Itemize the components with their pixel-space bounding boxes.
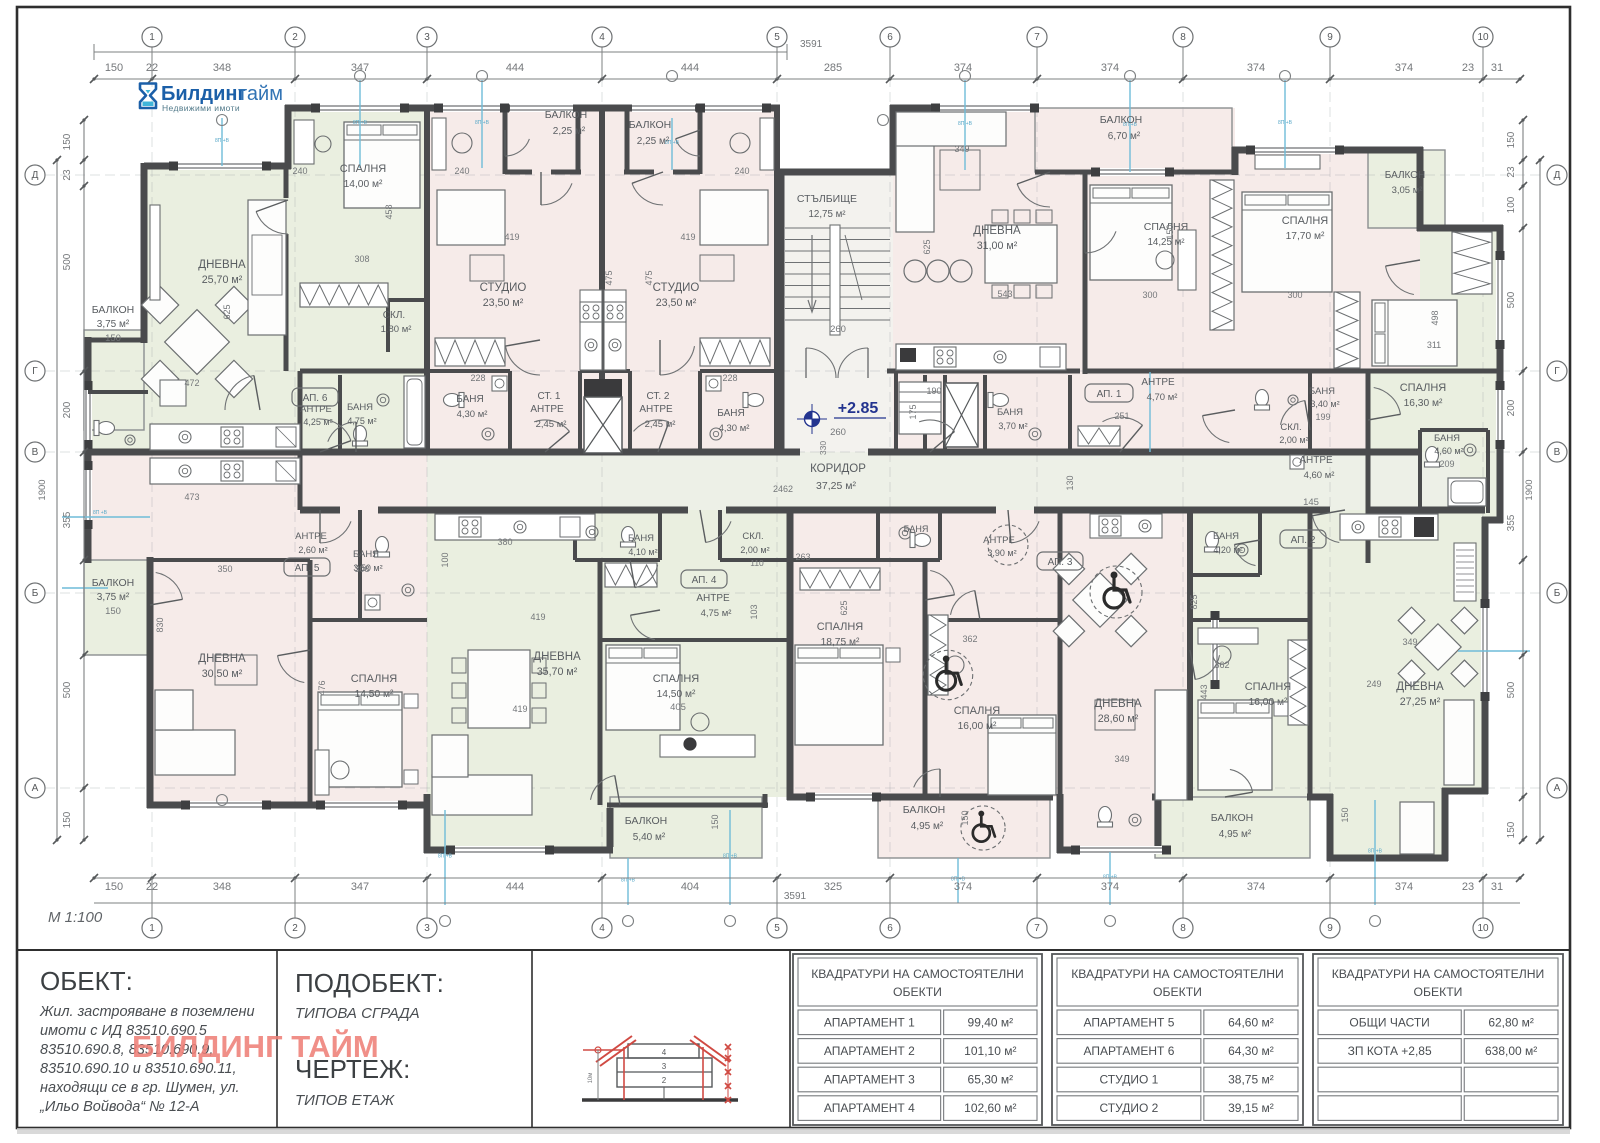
svg-text:500: 500 [62,681,73,698]
svg-text:349: 349 [954,144,969,154]
svg-text:8П +В: 8П +В [353,120,368,126]
svg-text:473: 473 [184,492,199,502]
svg-text:9: 9 [1327,32,1333,43]
svg-text:4,30 м²: 4,30 м² [719,423,750,434]
svg-text:БАЛКОН: БАЛКОН [92,577,135,589]
svg-text:ДНЕВНА: ДНЕВНА [198,259,246,271]
svg-text:830: 830 [155,617,165,632]
svg-text:150: 150 [62,811,73,828]
svg-text:2462: 2462 [773,484,793,494]
svg-text:348: 348 [213,881,231,893]
svg-text:23: 23 [1462,881,1474,893]
svg-text:ОБЩИ ЧАСТИ: ОБЩИ ЧАСТИ [1349,1015,1429,1029]
svg-text:18,75 м²: 18,75 м² [821,637,860,648]
svg-text:419: 419 [504,232,519,242]
svg-text:В: В [32,447,39,458]
svg-text:228: 228 [722,373,737,383]
svg-text:199: 199 [1315,412,1330,422]
svg-text:4,25 м²: 4,25 м² [303,417,332,427]
svg-text:374: 374 [1101,881,1119,893]
svg-text:СПАЛНЯ: СПАЛНЯ [340,163,387,175]
svg-text:АП. 1: АП. 1 [1097,389,1122,400]
svg-text:СТ. 1: СТ. 1 [537,391,560,402]
svg-text:110: 110 [750,558,764,568]
svg-text:А: А [1554,783,1561,794]
svg-text:300: 300 [1142,290,1157,300]
svg-text:БАНЯ: БАНЯ [1213,531,1239,542]
svg-text:145: 145 [1303,497,1319,508]
svg-text:190: 190 [926,386,941,396]
svg-text:БАЛКОН: БАЛКОН [92,304,135,316]
svg-text:200: 200 [62,401,73,418]
svg-text:АПАРТАМЕНТ 6: АПАРТАМЕНТ 6 [1083,1044,1174,1058]
svg-text:260: 260 [830,324,846,335]
svg-text:5: 5 [774,32,780,43]
svg-text:АНТРЕ: АНТРЕ [983,535,1015,546]
svg-text:475: 475 [604,270,614,285]
svg-text:14,00 м²: 14,00 м² [344,179,383,190]
svg-text:150: 150 [710,814,720,829]
svg-text:500: 500 [1506,291,1517,308]
svg-text:150: 150 [105,881,123,893]
svg-text:500: 500 [62,253,73,270]
svg-text:8: 8 [1180,923,1186,934]
svg-text:2,25 м²: 2,25 м² [553,126,586,137]
svg-text:В: В [1554,447,1561,458]
svg-text:ДНЕВНА: ДНЕВНА [533,651,581,663]
svg-text:тайм: тайм [238,83,283,105]
svg-text:6: 6 [887,32,893,43]
svg-text:Жил. застрояване в поземлени: Жил. застрояване в поземлени [39,1004,255,1020]
svg-text:28,60 м²: 28,60 м² [1098,713,1139,725]
svg-text:355: 355 [1506,514,1517,531]
svg-text:СПАЛНЯ: СПАЛНЯ [653,673,700,685]
svg-text:350: 350 [217,564,232,574]
svg-text:374: 374 [1101,62,1119,74]
svg-text:АП. 5: АП. 5 [295,563,320,574]
svg-text:ДНЕВНА: ДНЕВНА [1396,681,1444,693]
svg-text:14,50 м²: 14,50 м² [657,689,696,700]
svg-text:175: 175 [908,404,918,419]
svg-text:СТУДИО: СТУДИО [653,282,700,294]
svg-text:3,40 м²: 3,40 м² [1310,399,1339,409]
svg-text:23: 23 [1462,62,1474,74]
svg-text:СКЛ.: СКЛ. [383,310,405,321]
svg-text:4,60 м²: 4,60 м² [1304,470,1335,481]
svg-text:37,25 м²: 37,25 м² [816,480,856,492]
svg-text:8П +В: 8П +В [1278,120,1293,126]
svg-text:17,70 м²: 17,70 м² [1286,231,1325,242]
svg-text:2: 2 [292,32,298,43]
svg-text:8П +В: 8П +В [723,854,738,860]
svg-text:М 1:100: М 1:100 [48,909,103,926]
svg-text:23,50 м²: 23,50 м² [483,297,524,309]
svg-text:3,75 м²: 3,75 м² [97,592,130,603]
svg-text:СПАЛНЯ: СПАЛНЯ [1282,215,1329,227]
svg-text:39,15 м²: 39,15 м² [1228,1101,1274,1115]
svg-text:БАНЯ: БАНЯ [997,407,1023,418]
svg-text:625: 625 [222,304,232,319]
svg-text:АП. 4: АП. 4 [692,575,717,586]
svg-text:16,30 м²: 16,30 м² [1404,398,1443,409]
svg-text:Д: Д [1554,170,1561,181]
svg-text:38,75 м²: 38,75 м² [1228,1073,1274,1087]
svg-text:БАЛКОН: БАЛКОН [545,109,588,121]
svg-text:16,00 м²: 16,00 м² [1249,697,1288,708]
svg-text:1900: 1900 [1524,479,1535,500]
svg-text:62,80 м²: 62,80 м² [1488,1015,1534,1029]
svg-text:10: 10 [1477,32,1489,43]
svg-text:БАНЯ: БАНЯ [1434,433,1460,444]
svg-text:СТУДИО 2: СТУДИО 2 [1100,1101,1159,1115]
svg-text:2,00 м²: 2,00 м² [1279,435,1308,445]
svg-text:311: 311 [1427,340,1441,350]
svg-text:23: 23 [62,169,73,181]
svg-text:355: 355 [62,511,73,528]
svg-text:150: 150 [105,62,123,74]
svg-text:СПАЛНЯ: СПАЛНЯ [1245,681,1292,693]
svg-text:АП. 2: АП. 2 [1291,535,1316,546]
svg-text:Б: Б [1554,588,1561,599]
svg-text:Д: Д [32,170,39,181]
svg-text:64,60 м²: 64,60 м² [1228,1015,1274,1029]
svg-text:150: 150 [105,606,121,617]
svg-text:150: 150 [960,810,970,825]
svg-text:419: 419 [512,704,527,714]
svg-text:АНТРЕ: АНТРЕ [696,593,730,604]
svg-text:СПАЛНЯ: СПАЛНЯ [351,673,398,685]
svg-text:444: 444 [681,62,699,74]
svg-text:АПАРТАМЕНТ 2: АПАРТАМЕНТ 2 [824,1044,915,1058]
svg-text:150: 150 [105,333,121,344]
svg-text:Недвижими имоти: Недвижими имоти [162,103,240,113]
svg-text:31: 31 [1491,881,1503,893]
svg-text:БАЛКОН: БАЛКОН [903,804,946,816]
svg-text:3,05 м²: 3,05 м² [1392,185,1423,196]
svg-text:101,10 м²: 101,10 м² [964,1044,1016,1058]
svg-text:АНТРЕ: АНТРЕ [300,404,332,415]
svg-text:404: 404 [681,881,699,893]
svg-text:Г: Г [1554,366,1560,377]
svg-text:5: 5 [774,923,780,934]
svg-text:347: 347 [351,881,369,893]
svg-text:308: 308 [354,564,369,574]
svg-text:472: 472 [184,378,199,388]
svg-text:31: 31 [1491,62,1503,74]
svg-text:103: 103 [749,604,759,619]
svg-text:1900: 1900 [37,479,48,500]
svg-text:ПОДОБЕКТ:: ПОДОБЕКТ: [295,968,444,998]
svg-text:625: 625 [839,600,849,615]
svg-text:349: 349 [1402,637,1417,647]
svg-text:3,75 м²: 3,75 м² [97,319,130,330]
svg-text:Г: Г [32,366,38,377]
svg-text:99,40 м²: 99,40 м² [968,1015,1014,1029]
svg-text:625: 625 [922,239,932,254]
svg-text:347: 347 [351,62,369,74]
svg-text:БАНЯ: БАНЯ [347,402,373,413]
svg-text:БАНЯ: БАНЯ [1309,386,1335,397]
svg-text:374: 374 [1247,62,1265,74]
svg-text:БАЛКОН: БАЛКОН [625,815,668,827]
svg-text:240: 240 [292,166,307,176]
svg-text:374: 374 [1247,881,1265,893]
svg-text:4: 4 [662,1048,667,1057]
svg-text:2: 2 [662,1076,667,1085]
svg-text:+2.85: +2.85 [838,400,879,417]
svg-text:КВАДРАТУРИ НА САМОСТОЯТЕЛНИ: КВАДРАТУРИ НА САМОСТОЯТЕЛНИ [811,967,1024,981]
svg-text:4,10 м²: 4,10 м² [628,547,657,557]
svg-text:СТ. 2: СТ. 2 [646,391,669,402]
svg-text:260: 260 [830,427,846,438]
svg-text:2,25 м²: 2,25 м² [637,136,670,147]
svg-text:35,70 м²: 35,70 м² [537,666,578,678]
svg-text:БАЛКОН: БАЛКОН [1100,114,1143,126]
svg-text:374: 374 [1395,62,1413,74]
svg-text:АНТРЕ: АНТРЕ [1141,377,1175,388]
svg-text:БАЛКОН: БАЛКОН [629,119,672,131]
svg-text:12,75 м²: 12,75 м² [808,209,846,220]
svg-text:443: 443 [1199,684,1209,699]
svg-text:4,70 м²: 4,70 м² [1147,392,1178,403]
svg-text:АПАРТАМЕНТ 5: АПАРТАМЕНТ 5 [1083,1015,1174,1029]
svg-text:348: 348 [213,62,231,74]
svg-text:64,30 м²: 64,30 м² [1228,1044,1274,1058]
svg-text:3,70 м²: 3,70 м² [998,421,1027,431]
svg-text:3,90 м²: 3,90 м² [987,548,1016,558]
svg-text:150: 150 [1340,807,1350,822]
svg-text:444: 444 [506,62,524,74]
svg-text:ОБЕКТИ: ОБЕКТИ [893,985,942,999]
svg-text:475: 475 [644,270,654,285]
svg-text:638,00 м²: 638,00 м² [1485,1044,1537,1058]
svg-text:9: 9 [1327,923,1333,934]
svg-text:СКЛ.: СКЛ. [1280,422,1301,433]
svg-text:263: 263 [795,552,810,562]
svg-text:ДНЕВНА: ДНЕВНА [973,225,1021,237]
svg-text:8П +В: 8П +В [215,138,230,144]
svg-text:10: 10 [1477,923,1489,934]
svg-text:349: 349 [1114,754,1129,764]
svg-text:АНТРЕ: АНТРЕ [639,404,673,415]
svg-text:3: 3 [662,1062,667,1071]
svg-text:27,25 м²: 27,25 м² [1400,696,1441,708]
svg-text:АНТРЕ: АНТРЕ [295,531,327,542]
svg-text:65,30 м²: 65,30 м² [968,1073,1014,1087]
svg-text:БАЛКОН: БАЛКОН [1211,812,1254,824]
svg-text:4,75 м²: 4,75 м² [347,416,376,426]
svg-text:СПАЛНЯ: СПАЛНЯ [954,705,1001,717]
svg-text:Билдинг: Билдинг [161,83,246,105]
svg-text:4: 4 [599,923,605,934]
svg-text:СПАЛНЯ: СПАЛНЯ [817,621,864,633]
svg-text:ЗП КОТА +2,85: ЗП КОТА +2,85 [1348,1044,1432,1058]
svg-text:ОБЕКТ:: ОБЕКТ: [40,966,133,996]
svg-text:4,95 м²: 4,95 м² [1219,829,1252,840]
svg-text:ТИПОВА СГРАДА: ТИПОВА СГРАДА [295,1005,420,1022]
svg-text:ОБЕКТИ: ОБЕКТИ [1153,985,1202,999]
svg-text:285: 285 [824,62,842,74]
svg-text:ОБЕКТИ: ОБЕКТИ [1414,985,1463,999]
svg-text:240: 240 [734,166,749,176]
svg-text:374: 374 [1395,881,1413,893]
svg-text:150: 150 [1506,821,1517,838]
svg-text:458: 458 [384,204,394,219]
svg-text:ЧЕРТЕЖ:: ЧЕРТЕЖ: [295,1054,410,1084]
svg-text:362: 362 [962,634,977,644]
svg-text:БАНЯ: БАНЯ [353,549,379,560]
svg-text:Б: Б [32,588,39,599]
svg-text:ТИПОВ ЕТАЖ: ТИПОВ ЕТАЖ [295,1092,395,1109]
svg-text:2,60 м²: 2,60 м² [298,545,327,555]
svg-text:228: 228 [470,373,485,383]
svg-text:БАНЯ: БАНЯ [904,524,929,534]
svg-text:4,60 м²: 4,60 м² [1434,446,1463,456]
svg-text:476: 476 [317,680,327,695]
svg-text:444: 444 [506,881,524,893]
svg-text:150: 150 [1165,224,1175,239]
svg-text:8П +В: 8П +В [958,121,973,127]
svg-text:380: 380 [497,537,512,547]
svg-text:СТЪЛБИЩЕ: СТЪЛБИЩЕ [797,193,857,205]
svg-text:3: 3 [424,923,430,934]
svg-text:КВАДРАТУРИ НА САМОСТОЯТЕЛНИ: КВАДРАТУРИ НА САМОСТОЯТЕЛНИ [1071,967,1284,981]
svg-text:543: 543 [997,289,1012,299]
svg-text:419: 419 [530,612,545,622]
svg-text:23,50 м²: 23,50 м² [656,297,697,309]
svg-text:2: 2 [292,923,298,934]
svg-text:8: 8 [1180,32,1186,43]
svg-text:300: 300 [1287,290,1302,300]
svg-text:2,00 м²: 2,00 м² [740,545,769,555]
svg-text:7: 7 [1034,32,1040,43]
svg-text:8П +В: 8П +В [475,120,490,126]
svg-text:СТУДИО 1: СТУДИО 1 [1100,1073,1159,1087]
svg-text:500: 500 [1506,681,1517,698]
svg-text:ДНЕВНА: ДНЕВНА [1094,698,1142,710]
svg-text:АНТРЕ: АНТРЕ [1299,455,1333,466]
svg-text:АПАРТАМЕНТ 1: АПАРТАМЕНТ 1 [824,1015,915,1029]
svg-text:АПАРТАМЕНТ 4: АПАРТАМЕНТ 4 [824,1101,915,1115]
svg-text:209: 209 [1439,459,1454,469]
svg-text:16,00 м²: 16,00 м² [958,721,997,732]
svg-text:25,70 м²: 25,70 м² [202,274,243,286]
svg-text:СПАЛНЯ: СПАЛНЯ [1400,382,1447,394]
svg-text:2,45 м²: 2,45 м² [645,419,676,430]
svg-text:100: 100 [1506,196,1517,213]
svg-text:1: 1 [149,32,155,43]
svg-text:АП. 6: АП. 6 [303,393,328,404]
svg-text:3591: 3591 [800,39,823,50]
svg-text:249: 249 [1366,679,1381,689]
svg-text:ДНЕВНА: ДНЕВНА [198,653,246,665]
svg-text:3: 3 [424,32,430,43]
svg-text:4,20 м²: 4,20 м² [1213,545,1242,555]
svg-text:308: 308 [354,254,369,264]
svg-text:251: 251 [1114,411,1129,421]
svg-text:2,45 м²: 2,45 м² [536,419,567,430]
svg-text:4: 4 [599,32,605,43]
svg-text:БАНЯ: БАНЯ [628,533,654,544]
svg-text:200: 200 [1506,399,1517,416]
svg-text:СКЛ.: СКЛ. [742,531,763,542]
svg-text:150: 150 [62,133,73,150]
svg-text:100: 100 [440,552,450,567]
svg-text:4,30 м²: 4,30 м² [457,409,488,420]
svg-text:102,60 м²: 102,60 м² [964,1101,1016,1115]
svg-text:БАНЯ: БАНЯ [456,394,483,405]
svg-text:4,95 м²: 4,95 м² [911,821,944,832]
svg-text:4,75 м²: 4,75 м² [701,608,732,619]
svg-text:КВАДРАТУРИ НА САМОСТОЯТЕЛНИ: КВАДРАТУРИ НА САМОСТОЯТЕЛНИ [1332,967,1545,981]
svg-text:330: 330 [818,441,828,455]
svg-text:150: 150 [1506,131,1517,148]
svg-text:374: 374 [954,881,972,893]
svg-text:1: 1 [149,923,155,934]
svg-text:30,50 м²: 30,50 м² [202,668,243,680]
svg-text:10м: 10м [588,1073,594,1084]
svg-text:БАНЯ: БАНЯ [717,408,744,419]
svg-text:СТУДИО: СТУДИО [480,282,527,294]
svg-text:240: 240 [454,166,469,176]
svg-text:23: 23 [1506,166,1517,178]
svg-text:825: 825 [1189,594,1199,609]
svg-text:1,80 м²: 1,80 м² [381,324,412,335]
svg-text:405: 405 [670,702,686,713]
svg-text:31,00 м²: 31,00 м² [977,240,1018,252]
svg-text:130: 130 [1065,475,1075,490]
svg-text:5,40 м²: 5,40 м² [633,832,666,843]
svg-text:7: 7 [1034,923,1040,934]
svg-text:БАЛКОН: БАЛКОН [1385,170,1426,181]
svg-text:362: 362 [1214,660,1229,670]
svg-text:419: 419 [680,232,695,242]
svg-text:6,70 м²: 6,70 м² [1108,131,1141,142]
svg-text:„Ильо Войвода“ № 12-А: „Ильо Войвода“ № 12-А [39,1099,200,1115]
svg-text:АП. 3: АП. 3 [1048,557,1073,568]
svg-text:находящи се в гр. Шумен, ул.: находящи се в гр. Шумен, ул. [40,1080,240,1096]
svg-text:6: 6 [887,923,893,934]
svg-text:325: 325 [824,881,842,893]
svg-text:АПАРТАМЕНТ 3: АПАРТАМЕНТ 3 [824,1073,915,1087]
svg-text:8П +В: 8П +В [1368,849,1383,855]
svg-text:КОРИДОР: КОРИДОР [810,463,866,475]
svg-text:8П +В: 8П +В [438,854,453,860]
svg-text:498: 498 [1430,310,1440,325]
svg-text:А: А [32,783,39,794]
svg-text:АНТРЕ: АНТРЕ [530,404,564,415]
svg-text:14,50 м²: 14,50 м² [355,689,394,700]
svg-text:3591: 3591 [784,891,807,902]
svg-text:8П +В: 8П +В [93,510,108,516]
